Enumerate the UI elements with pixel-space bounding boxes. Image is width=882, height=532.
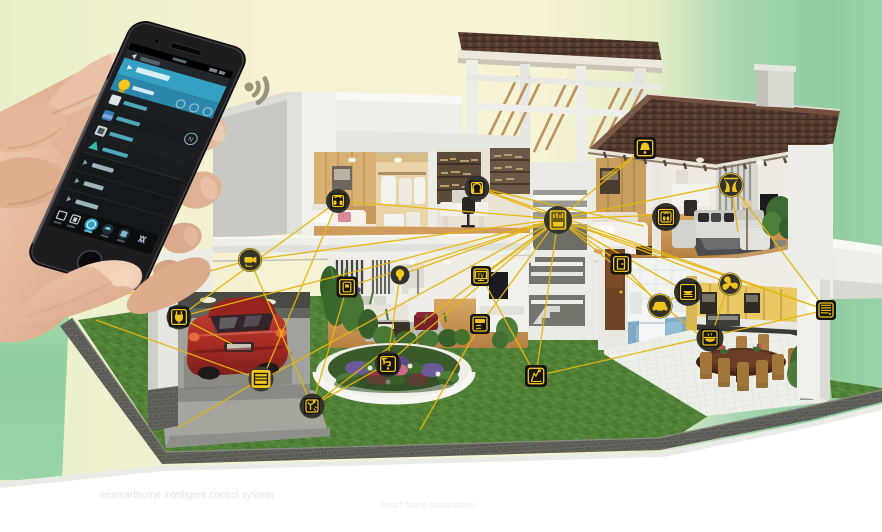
svg-text:TV: TV	[477, 273, 484, 279]
svg-text:eesmarthome intelligent contro: eesmarthome intelligent control system	[100, 490, 273, 501]
svg-text:smart home automation: smart home automation	[380, 500, 475, 510]
